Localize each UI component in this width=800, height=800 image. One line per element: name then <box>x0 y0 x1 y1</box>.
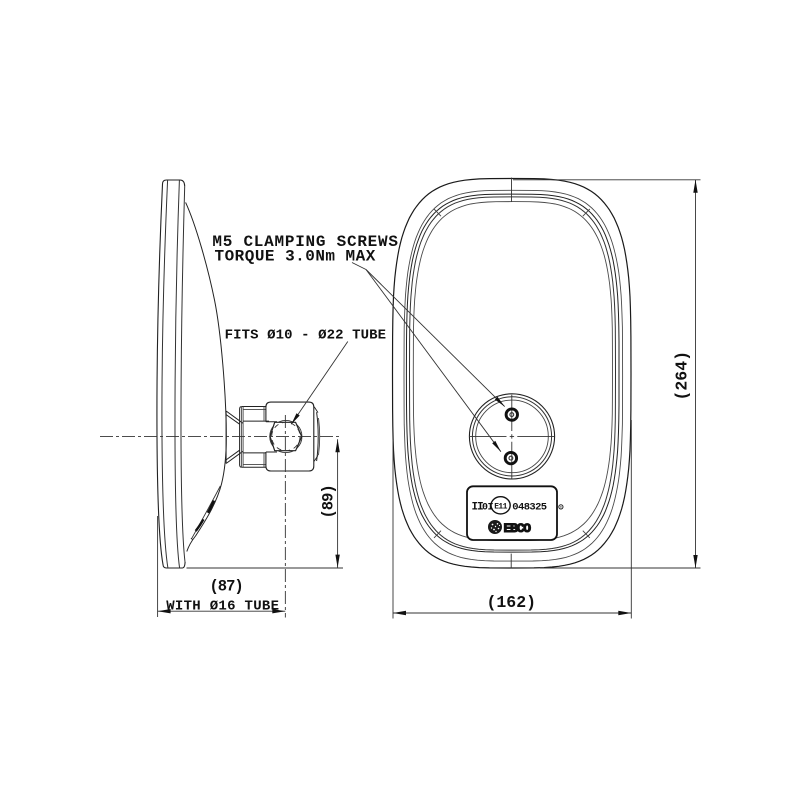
svg-text:(89): (89) <box>319 485 337 518</box>
svg-text:E11: E11 <box>494 502 507 511</box>
svg-text:(162): (162) <box>487 593 537 612</box>
svg-text:048325: 048325 <box>512 501 547 513</box>
svg-text:EBCO: EBCO <box>504 521 532 536</box>
svg-text:FITS Ø10 - Ø22 TUBE: FITS Ø10 - Ø22 TUBE <box>225 327 387 343</box>
svg-text:(264): (264) <box>673 351 692 401</box>
svg-text:(87): (87) <box>210 577 243 595</box>
svg-text:TORQUE 3.0Nm MAX: TORQUE 3.0Nm MAX <box>215 247 376 265</box>
svg-text:WITH Ø16 TUBE: WITH Ø16 TUBE <box>166 598 279 614</box>
